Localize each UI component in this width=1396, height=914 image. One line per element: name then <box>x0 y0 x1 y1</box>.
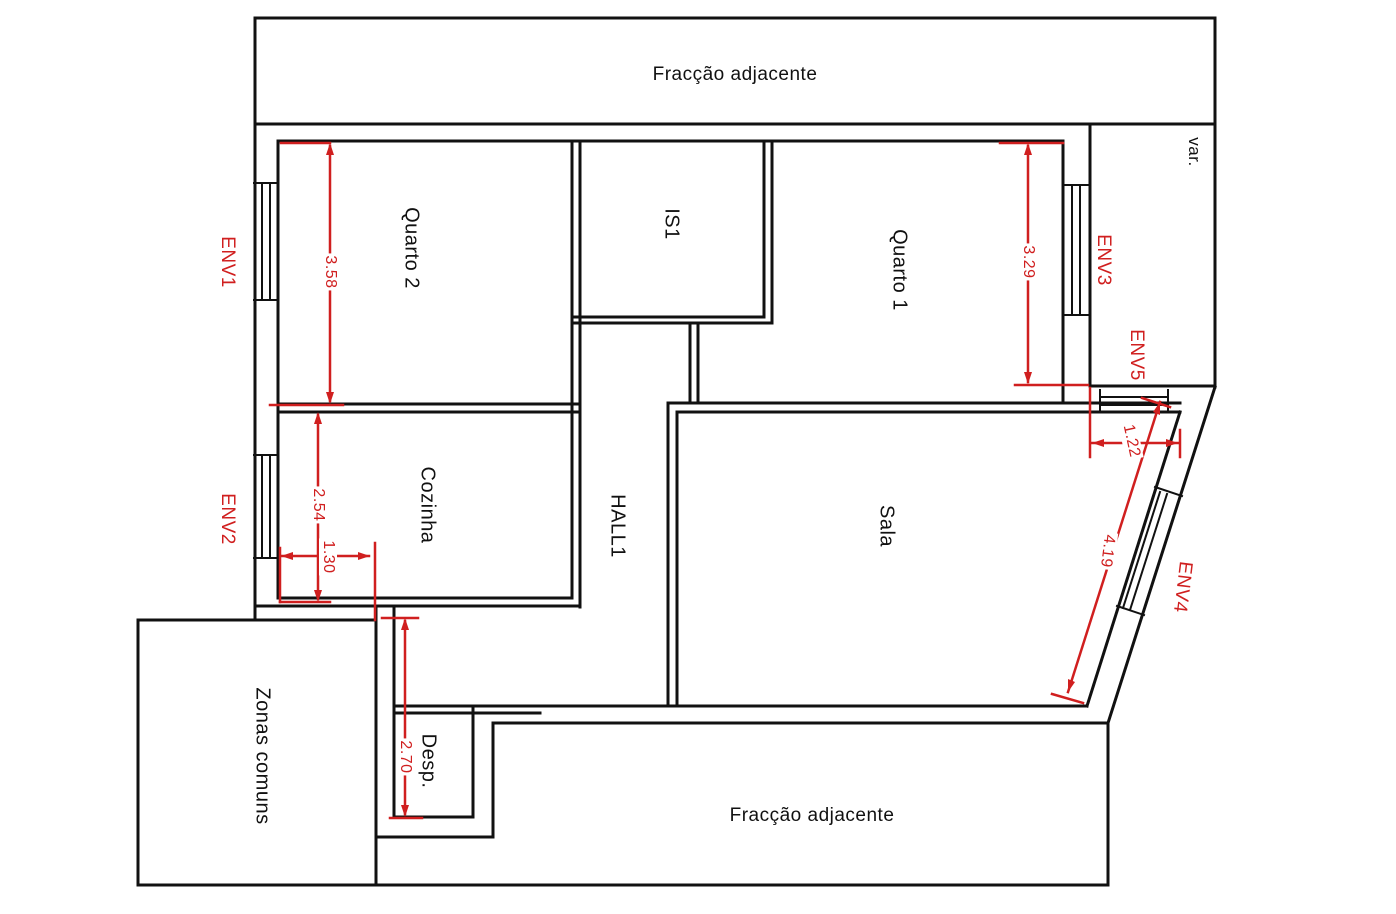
window-label-env1: ENV1 <box>216 236 238 288</box>
adjacent-fraction-bottom-label: Fracção adjacente <box>730 805 895 827</box>
window-label-env5: ENV5 <box>1125 329 1147 381</box>
window-label-env2: ENV2 <box>216 493 238 545</box>
dimension-cozinha-width: 1.30 <box>319 538 337 575</box>
window-label-env3: ENV3 <box>1092 234 1114 286</box>
dimension-cozinha-height: 2.54 <box>309 486 327 523</box>
room-label-sala: Sala <box>875 505 898 547</box>
floorplan-page: Fracção adjacente Fracção adjacente Quar… <box>0 0 1396 914</box>
room-label-desp: Desp. <box>417 734 440 789</box>
dimension-quarto2-height: 3.58 <box>321 253 339 290</box>
room-label-var: var. <box>1184 137 1204 166</box>
room-label-quarto1: Quarto 1 <box>888 229 911 311</box>
room-label-is1: IS1 <box>660 208 683 240</box>
dimension-desp-height: 2.70 <box>396 738 414 775</box>
adjacent-fraction-top-label: Fracção adjacente <box>653 64 818 86</box>
room-label-hall1: HALL1 <box>606 494 629 558</box>
room-label-zonas-comuns: Zonas comuns <box>251 687 274 824</box>
window-symbols <box>254 183 1182 615</box>
dimension-quarto1-height: 3.29 <box>1019 243 1037 280</box>
room-label-cozinha: Cozinha <box>416 467 439 544</box>
room-label-quarto2: Quarto 2 <box>400 207 423 289</box>
